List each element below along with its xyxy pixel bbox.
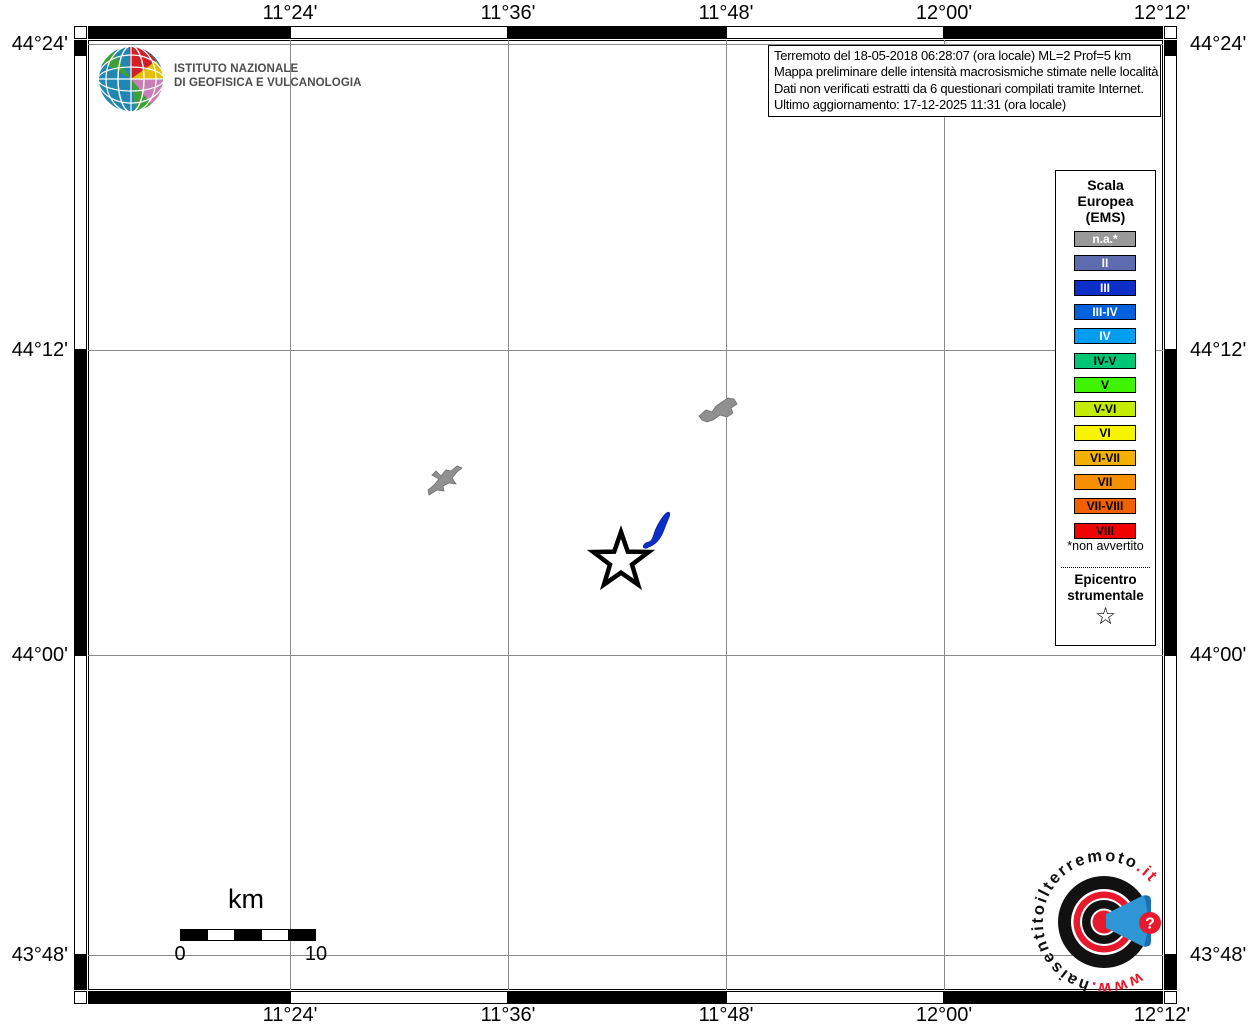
- legend-title-line2: Europea: [1056, 193, 1155, 209]
- axis-tick-label: 12°12': [1117, 1004, 1207, 1026]
- frame-zebra-segment: [1164, 955, 1177, 990]
- epicenter-star-icon: ☆: [1056, 603, 1155, 629]
- gridline-vertical: [290, 40, 291, 990]
- gridline-vertical: [508, 40, 509, 990]
- axis-tick-label: 11°36': [463, 1004, 553, 1026]
- macroseismic-map-page: { "header": { "logo": { "line1": "ISTITU…: [0, 0, 1257, 1024]
- axis-tick-label: 11°24': [245, 2, 335, 24]
- ingv-logo: ISTITUTO NAZIONALE DI GEOFISICA E VULCAN…: [96, 44, 362, 114]
- info-line-updated: Ultimo aggiornamento: 17-12-2025 11:31 (…: [774, 97, 1155, 113]
- frame-zebra-segment: [290, 26, 508, 39]
- legend-title-line1: Scala: [1056, 177, 1155, 193]
- frame-zebra-segment: [726, 991, 944, 1004]
- legend-title: Scala Europea (EMS): [1056, 177, 1155, 225]
- frame-zebra-segment: [74, 40, 87, 55]
- gridline-horizontal: [88, 350, 1163, 351]
- earthquake-info-box: Terremoto del 18-05-2018 06:28:07 (ora l…: [768, 45, 1161, 117]
- axis-tick-label: 11°24': [245, 1004, 335, 1026]
- legend-chip-vii-viii: VII-VIII: [1074, 498, 1136, 514]
- ems-legend: Scala Europea (EMS) n.a.*IIIIIIII-IVIVIV…: [1055, 170, 1156, 646]
- legend-epicenter-label: Epicentro strumentale: [1056, 572, 1155, 604]
- axis-tick-label: 11°48': [681, 1004, 771, 1026]
- gridline-horizontal: [88, 655, 1163, 656]
- legend-chip-n-a-: n.a.*: [1074, 231, 1136, 247]
- axis-tick-label: 44°12': [1190, 339, 1257, 361]
- frame-corner-square: [1164, 991, 1177, 1004]
- scale-bar-segment: [234, 929, 262, 941]
- axis-tick-label: 44°24': [0, 33, 70, 55]
- frame-zebra-segment: [74, 955, 87, 990]
- info-line-data-source: Dati non verificati estratti da 6 questi…: [774, 81, 1155, 97]
- ingv-globe-icon: [96, 44, 166, 114]
- axis-tick-label: 44°00': [0, 644, 70, 666]
- frame-zebra-segment: [290, 991, 508, 1004]
- info-line-event: Terremoto del 18-05-2018 06:28:07 (ora l…: [774, 48, 1155, 64]
- legend-chip-vii: VII: [1074, 474, 1136, 490]
- frame-zebra-segment: [1164, 55, 1177, 350]
- frame-corner-square: [74, 26, 87, 39]
- legend-chip-v-vi: V-VI: [1074, 401, 1136, 417]
- axis-tick-label: 43°48': [1190, 944, 1257, 966]
- axis-tick-label: 11°36': [463, 2, 553, 24]
- scale-bar-segment: [261, 929, 289, 941]
- frame-zebra-segment: [74, 55, 87, 350]
- axis-tick-label: 44°24': [1190, 33, 1257, 55]
- ingv-logo-line1: ISTITUTO NAZIONALE: [174, 62, 362, 76]
- frame-zebra-segment: [944, 26, 1163, 39]
- info-line-map-desc: Mappa preliminare delle intensità macros…: [774, 64, 1155, 80]
- legend-title-line3: (EMS): [1056, 209, 1155, 225]
- frame-zebra-segment: [508, 26, 726, 39]
- frame-zebra-segment: [508, 991, 726, 1004]
- scale-bar-segment: [207, 929, 235, 941]
- legend-chip-viii: VIII: [1074, 523, 1136, 539]
- axis-tick-label: 44°12': [0, 339, 70, 361]
- gridline-vertical: [944, 40, 945, 990]
- gridline-horizontal: [88, 955, 1163, 956]
- axis-tick-label: 12°00': [899, 2, 989, 24]
- axis-tick-label: 12°00': [899, 1004, 989, 1026]
- legend-chip-iii: III: [1074, 280, 1136, 296]
- frame-zebra-segment: [944, 991, 1163, 1004]
- legend-chip-iii-iv: III-IV: [1074, 304, 1136, 320]
- axis-tick-label: 12°12': [1117, 2, 1207, 24]
- map-border: [88, 40, 1163, 990]
- axis-tick-label: 44°00': [1190, 644, 1257, 666]
- legend-chip-ii: II: [1074, 255, 1136, 271]
- frame-zebra-segment: [1164, 655, 1177, 955]
- scale-bar-segment: [288, 929, 316, 941]
- legend-chip-v: V: [1074, 377, 1136, 393]
- gridline-vertical: [726, 40, 727, 990]
- ingv-logo-line2: DI GEOFISICA E VULCANOLOGIA: [174, 76, 362, 90]
- legend-divider: [1061, 567, 1150, 568]
- axis-tick-label: 43°48': [0, 944, 70, 966]
- scale-bar-segment: [180, 929, 208, 941]
- legend-footnote: *non avvertito: [1056, 539, 1155, 553]
- legend-chip-vi: VI: [1074, 425, 1136, 441]
- frame-zebra-segment: [1164, 350, 1177, 655]
- ingv-logo-text: ISTITUTO NAZIONALE DI GEOFISICA E VULCAN…: [174, 62, 362, 90]
- frame-zebra-segment: [88, 991, 290, 1004]
- legend-chip-iv: IV: [1074, 328, 1136, 344]
- frame-corner-square: [1164, 26, 1177, 39]
- frame-corner-square: [74, 991, 87, 1004]
- frame-zebra-segment: [74, 350, 87, 655]
- scale-bar-start-label: 0: [150, 943, 210, 966]
- frame-zebra-segment: [726, 26, 944, 39]
- legend-chip-vi-vii: VI-VII: [1074, 450, 1136, 466]
- legend-chip-iv-v: IV-V: [1074, 353, 1136, 369]
- axis-tick-label: 11°48': [681, 2, 771, 24]
- frame-zebra-segment: [1164, 40, 1177, 55]
- scale-bar-end-label: 10: [286, 943, 346, 966]
- scale-bar-unit: km: [196, 884, 296, 915]
- frame-zebra-segment: [88, 26, 290, 39]
- frame-zebra-segment: [74, 655, 87, 955]
- legend-epicenter-line1: Epicentro: [1056, 572, 1155, 588]
